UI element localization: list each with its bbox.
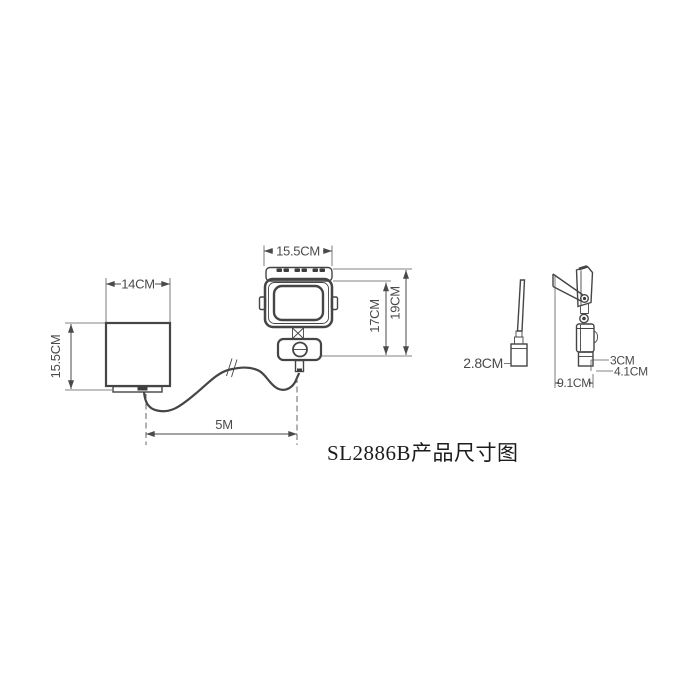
cable xyxy=(144,359,299,412)
cable-length-label: 5M xyxy=(215,417,232,432)
solar-side-depth-dimension: 2.8CM xyxy=(463,355,511,371)
floodlight-side-view xyxy=(553,267,598,367)
panel-edge xyxy=(518,280,525,331)
diagram-title: SL2886B产品尺寸图 xyxy=(327,441,519,465)
solar-height-dimension: 15.5CM xyxy=(48,323,112,390)
cable-path xyxy=(144,368,299,412)
total-depth-label: 9.1CM xyxy=(557,376,591,390)
solar-panel-body xyxy=(106,323,170,386)
solar-width-dimension: 14CM xyxy=(106,277,170,323)
floodlight-side-depth-leaders: 3CM 4.1CM xyxy=(591,354,648,379)
solar-height-label: 15.5CM xyxy=(48,335,63,379)
cable-break-mark xyxy=(227,359,233,377)
lamp-lens xyxy=(274,286,323,320)
diagram-canvas: 14CM 15.5CM 5M xyxy=(0,0,700,700)
solar-width-label: 14CM xyxy=(121,277,154,292)
floodlight-inner-height-label: 17CM xyxy=(367,299,382,332)
pivot-knuckle xyxy=(293,328,304,340)
mount-arm xyxy=(553,274,583,301)
technical-drawing: 14CM 15.5CM 5M xyxy=(0,0,700,700)
mount-clip xyxy=(277,269,283,273)
floodlight-outer-height-label: 19CM xyxy=(388,286,403,319)
floodlight-width-label: 15.5CM xyxy=(276,244,320,259)
solar-panel-front-view xyxy=(106,323,170,392)
solar-panel-side-view xyxy=(511,280,527,366)
floodlight-width-dimension: 15.5CM xyxy=(264,244,332,267)
floodlight-side-total-depth-dimension: 9.1CM xyxy=(555,276,593,390)
side-base xyxy=(511,344,527,366)
solar-panel-cable-port xyxy=(138,387,148,391)
floodlight-height-dimensions: 17CM 19CM xyxy=(322,269,412,356)
full-depth-label: 4.1CM xyxy=(614,365,648,379)
solar-side-depth-label: 2.8CM xyxy=(463,355,503,371)
